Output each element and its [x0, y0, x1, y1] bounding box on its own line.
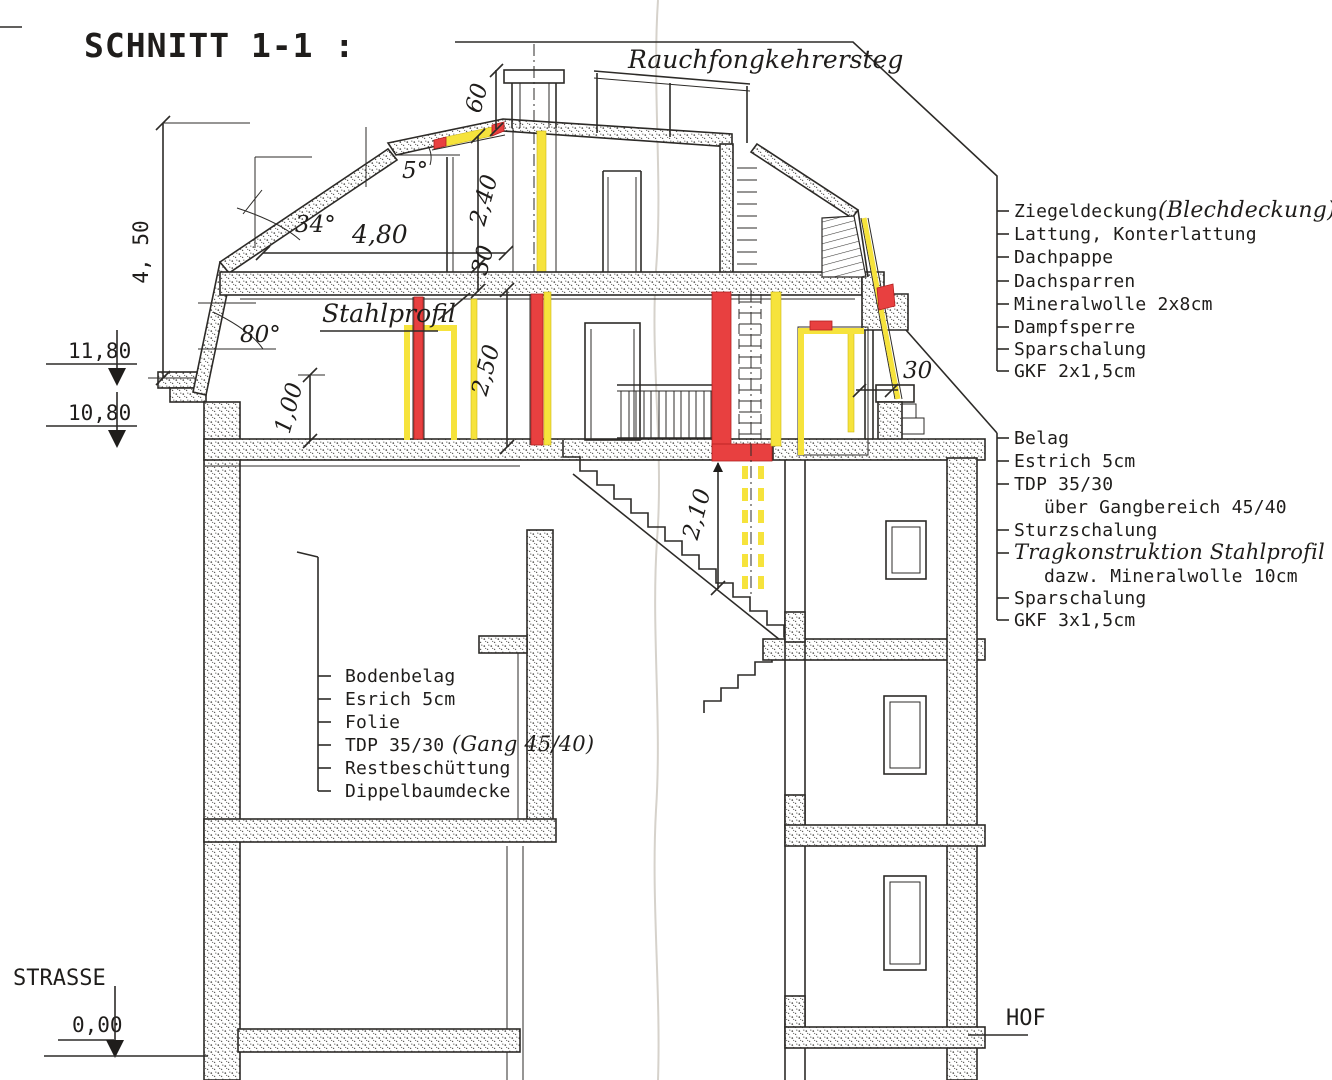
roof-layer-item: Ziegeldeckung	[1014, 201, 1157, 222]
ceiling-layer-item: Estrich 5cm	[1014, 451, 1135, 472]
attic-right-doorway	[798, 321, 868, 455]
angle-top-label: 5°	[402, 158, 428, 184]
ceiling-layer-item: Sturzschalung	[1014, 520, 1157, 541]
dim-knee-wall-label: 1,00	[270, 380, 308, 436]
dim-headroom: 2,10	[678, 462, 725, 595]
right-roof-overhang	[751, 144, 868, 277]
right-wing	[785, 458, 985, 1080]
dim-parapet-label: 30	[903, 358, 932, 384]
floor-layer-item: Restbeschüttung	[345, 758, 511, 779]
staircase-lower-flight	[704, 649, 772, 713]
steel-column-3-L	[712, 292, 772, 461]
ceiling-layer-item: Sparschalung	[1014, 588, 1146, 609]
facade-window-3	[884, 876, 926, 970]
roof-layer-item: Lattung, Konterlattung	[1014, 224, 1257, 245]
courtyard-label: HOF	[1006, 1006, 1046, 1031]
ground-floor-slab-left	[238, 1029, 520, 1052]
floor-layer-item: Bodenbelag	[345, 666, 455, 687]
floor-layer-item: Dippelbaumdecke	[345, 781, 511, 802]
floor-layer-list: Bodenbelag Esrich 5cm Folie TDP 35/30 (G…	[345, 666, 594, 802]
dim-upper-room-label: 2,40	[465, 172, 504, 229]
floor-layer-item: TDP 35/30	[345, 735, 444, 756]
angle-roof-label: 34°	[295, 212, 336, 238]
floor-layer-item: Folie	[345, 712, 400, 733]
roof-layer-note: (Blechdeckung)	[1158, 198, 1332, 223]
mid-floor-slab-right	[785, 825, 985, 846]
ceiling-layer-item-indent: über Gangbereich 45/40	[1044, 497, 1287, 518]
roof-layer-item: Dachpappe	[1014, 247, 1113, 268]
ceiling-layer-item: GKF 3x1,5cm	[1014, 610, 1135, 631]
angle-mansard-label: 80°	[240, 322, 281, 348]
roof-layer-item: Mineralwolle 2x8cm	[1014, 294, 1213, 315]
attic-window	[585, 323, 640, 440]
ceiling-layer-item-indent: dazw. Mineralwolle 10cm	[1044, 566, 1298, 587]
floor-layer-item: Esrich 5cm	[345, 689, 455, 710]
penthouse-walls	[366, 127, 757, 277]
roof-walkway-label: Rauchfongkehrersteg	[627, 45, 903, 74]
roof-layer-item: Sparschalung	[1014, 339, 1146, 360]
roof-layer-item: Dampfsperre	[1014, 317, 1135, 338]
stair-railing	[617, 385, 715, 438]
mid-floor-slab-left	[204, 819, 556, 842]
roof-layer-item: GKF 2x1,5cm	[1014, 361, 1135, 382]
attic-floor-slab-right	[773, 439, 985, 460]
ceiling-layer-list: Belag Estrich 5cm TDP 35/30 über Gangber…	[1014, 428, 1325, 631]
floor-layer-leader	[297, 552, 331, 791]
level-attic-floor-label: 10,80	[68, 401, 131, 425]
facade-window-1	[886, 521, 926, 579]
penthouse-door	[603, 171, 641, 275]
hidden-steel-below	[745, 466, 761, 594]
steel-post-highlight-2	[771, 292, 781, 446]
section-drawing-page: SCHNITT 1-1 :	[0, 0, 1332, 1080]
elevation-marker-street: 0,00	[58, 986, 124, 1058]
steel-bracket-highlight	[877, 284, 895, 310]
dim-headroom-label: 2,10	[678, 486, 717, 543]
elevation-triangle-icon	[108, 368, 126, 386]
street-label: STRASSE	[13, 966, 106, 991]
dim-wall-height: 4, 50	[129, 116, 250, 385]
gable-wall-dashes	[737, 168, 757, 264]
dim-attic-width-label: 4,80	[351, 220, 408, 249]
elevation-marker-eave: 11,80	[46, 330, 137, 386]
center-wall	[479, 530, 553, 1080]
steel-column-2	[530, 292, 551, 445]
roof-layer-item: Dachsparren	[1014, 271, 1135, 292]
dim-chimney-label: 60	[461, 81, 494, 116]
dim-knee-wall: 1,00	[270, 368, 325, 448]
facade-window-2	[884, 696, 926, 774]
ceiling-slab	[220, 272, 862, 295]
roof-layer-list: Ziegeldeckung (Blechdeckung) Lattung, Ko…	[1014, 198, 1332, 382]
section-drawing: SCHNITT 1-1 :	[0, 0, 1332, 1080]
steel-profile-label: Stahlprofil	[322, 299, 456, 328]
ceiling-layer-item-hand: Tragkonstruktion Stahlprofil	[1014, 540, 1325, 564]
right-outer-wall	[947, 458, 977, 1080]
chimney	[504, 44, 564, 288]
steel-profile-callout: Stahlprofil	[320, 293, 470, 331]
ceiling-layer-item: TDP 35/30	[1014, 474, 1113, 495]
dim-wall-height-label: 4, 50	[129, 220, 153, 283]
page-title: SCHNITT 1-1 :	[84, 26, 355, 65]
left-outer-wall	[158, 372, 240, 1080]
elevation-triangle-icon	[108, 430, 126, 448]
attic-floor-slab-left	[204, 439, 772, 460]
ceiling-layer-item: Belag	[1014, 428, 1069, 449]
ladder	[739, 294, 761, 443]
level-eave-label: 11,80	[68, 339, 131, 363]
ground-floor-slab-right	[785, 1027, 985, 1048]
staircase-upper-flight	[563, 440, 790, 648]
floor-layer-note: (Gang 45/40)	[452, 732, 594, 756]
elevation-marker-attic-floor: 10,80	[46, 392, 137, 448]
